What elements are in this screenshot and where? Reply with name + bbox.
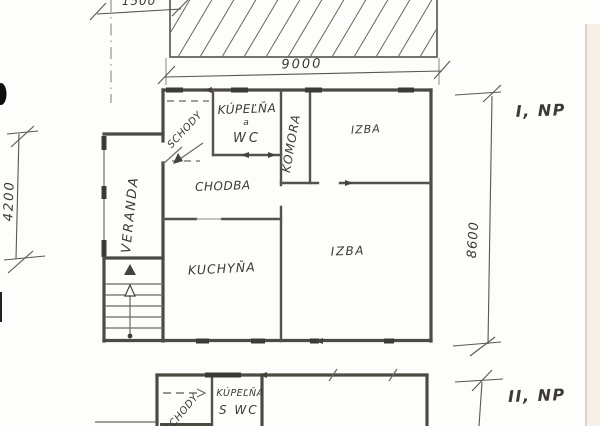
dimension-left-height: 4200 xyxy=(1,126,45,273)
wall-tick xyxy=(204,87,212,93)
dimension-top-offset-value: 1500 xyxy=(122,0,157,8)
stair-line-end-dot xyxy=(128,334,133,339)
floor2-schody-markings: SCHODY xyxy=(163,389,205,426)
schody-arrow-icon xyxy=(197,389,205,397)
room-label-izba-top: IZBA xyxy=(351,122,381,137)
room-label-komora: KOMORA xyxy=(279,113,303,174)
dimension-left-height-value: 4200 xyxy=(1,180,17,222)
dimension-right-height-value: 8600 xyxy=(465,221,483,259)
room-label-swc-2: S WC xyxy=(219,403,259,417)
scan-blob-artifact xyxy=(0,83,7,105)
wall-tick xyxy=(268,152,276,158)
stair-solid-arrow-icon xyxy=(124,264,136,275)
scan-artifacts xyxy=(0,24,600,426)
hatched-area-outline xyxy=(170,0,437,57)
floor2-label: II, NP xyxy=(508,385,566,406)
floor1-room-labels: SCHODY KÚPEĽŇA a WC KOMORA IZBA CHODBA V… xyxy=(119,100,381,278)
stair-open-arrow-icon xyxy=(125,285,135,296)
room-label-schody: SCHODY xyxy=(166,110,205,151)
room-label-chodba: CHODBA xyxy=(195,178,251,194)
room-label-veranda: VERANDA xyxy=(119,175,142,254)
room-label-schody-2: SCHODY xyxy=(163,392,201,426)
scanned-floor-plan-page: 1500 9000 xyxy=(0,0,600,426)
dimension-floor2-start xyxy=(455,370,503,426)
hatched-roof-area xyxy=(156,0,484,57)
hatch-lines xyxy=(156,0,484,57)
staircase xyxy=(105,264,163,338)
room-label-wc: WC xyxy=(233,131,261,146)
dimension-top-width-value: 9000 xyxy=(281,56,322,72)
room-label-kupelna-a: a xyxy=(243,118,249,128)
dimension-top-offset: 1500 xyxy=(90,0,188,20)
room-label-kupelna-2: KÚPEĽŇA xyxy=(216,387,263,399)
room-label-kuchyna: KUCHYŇA xyxy=(188,259,256,278)
room-label-izba-big: IZBA xyxy=(331,243,366,258)
dimension-top-width: 9000 xyxy=(158,56,450,85)
wall-tick xyxy=(241,152,249,158)
paper-edge-band xyxy=(587,24,600,426)
dimension-right-height: 8600 xyxy=(453,85,501,356)
floor2-room-labels: KÚPEĽŇA S WC xyxy=(216,387,263,417)
room-label-kupelna: KÚPEĽŇA xyxy=(217,100,276,117)
wall-tick xyxy=(345,180,353,186)
floor1-label: I, NP xyxy=(515,100,566,121)
scan-edge-artifact xyxy=(0,292,2,322)
floor-plan-drawing: 1500 9000 xyxy=(0,0,600,426)
